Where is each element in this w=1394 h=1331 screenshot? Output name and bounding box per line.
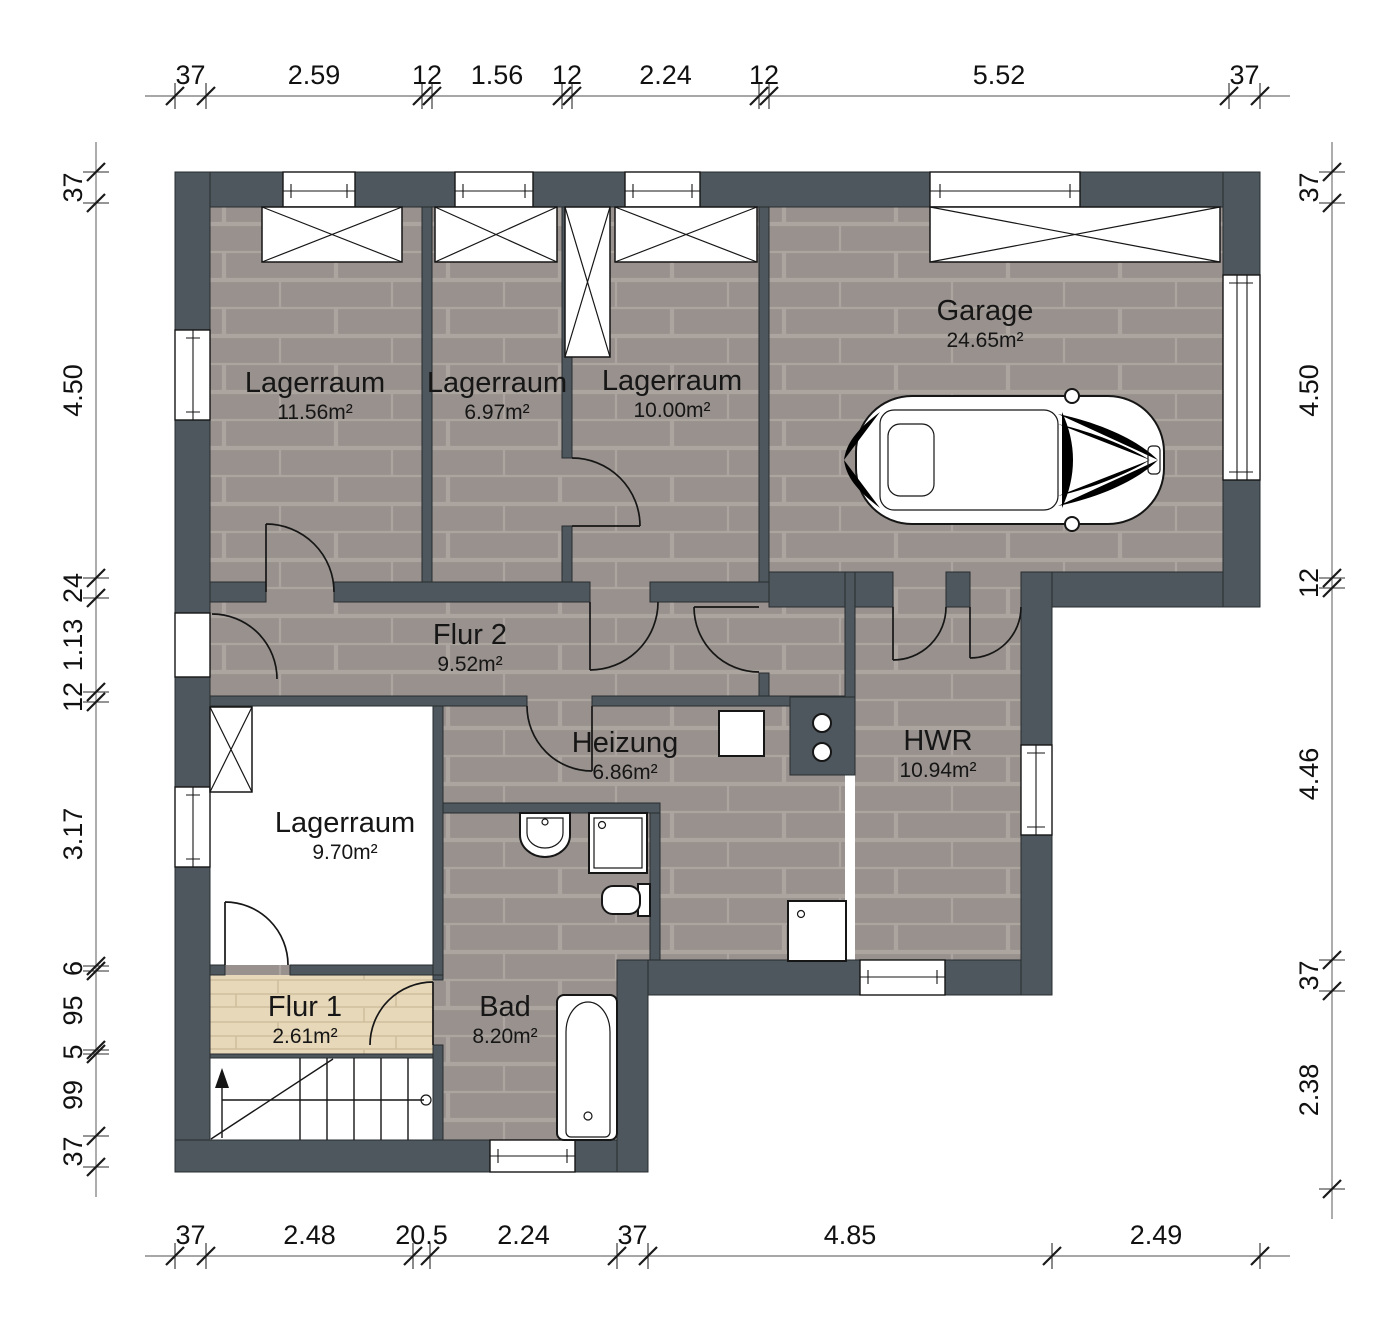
car-icon — [844, 389, 1164, 531]
svg-text:12: 12 — [412, 60, 442, 90]
svg-text:12: 12 — [58, 682, 88, 712]
svg-text:1.56: 1.56 — [471, 60, 524, 90]
svg-text:24.65m²: 24.65m² — [946, 329, 1023, 352]
svg-text:2.61m²: 2.61m² — [272, 1025, 337, 1048]
svg-text:99: 99 — [58, 1080, 88, 1110]
svg-text:Lagerraum: Lagerraum — [275, 807, 415, 839]
floorplan-canvas: Lagerraum11.56m²Lagerraum6.97m²Lagerraum… — [0, 0, 1394, 1331]
svg-text:8.20m²: 8.20m² — [472, 1025, 537, 1048]
svg-text:Heizung: Heizung — [572, 727, 678, 759]
svg-text:4.50: 4.50 — [58, 364, 88, 417]
svg-text:4.50: 4.50 — [1294, 364, 1324, 417]
window-icon — [490, 1140, 575, 1172]
svg-text:2.48: 2.48 — [283, 1220, 336, 1250]
lintel-x-icon — [615, 207, 757, 262]
svg-text:3.17: 3.17 — [58, 808, 88, 861]
dimension-chain-left: 374.50241.13123.1769559937 — [58, 142, 109, 1197]
window-icon — [860, 960, 945, 995]
exterior-door-opening — [175, 613, 210, 677]
svg-text:10.94m²: 10.94m² — [899, 759, 976, 782]
window-icon — [175, 330, 210, 420]
svg-text:4.46: 4.46 — [1294, 748, 1324, 801]
window-icon — [1021, 745, 1052, 835]
dimension-chain-bottom: 372.4820.52.24374.852.49 — [145, 1220, 1290, 1269]
sink-icon — [520, 813, 570, 857]
dimension-chain-top: 372.59121.56122.24125.5237 — [145, 60, 1290, 109]
floor-hwr — [855, 607, 1021, 960]
svg-text:20.5: 20.5 — [395, 1220, 448, 1250]
svg-text:Lagerraum: Lagerraum — [427, 367, 567, 399]
window-icon — [283, 172, 355, 207]
toilet-icon — [602, 884, 650, 916]
svg-text:5.52: 5.52 — [973, 60, 1026, 90]
room-label-lagerraum-4: Lagerraum9.70m² — [275, 807, 415, 864]
svg-text:6: 6 — [58, 961, 88, 976]
svg-text:1.13: 1.13 — [58, 619, 88, 672]
lintel-x-icon — [435, 207, 557, 262]
svg-text:2.24: 2.24 — [639, 60, 692, 90]
svg-text:24: 24 — [58, 573, 88, 603]
washing-machine-icon — [788, 901, 846, 961]
floor-flur-2 — [210, 602, 845, 696]
door-arc — [225, 902, 288, 965]
svg-text:95: 95 — [58, 995, 88, 1025]
svg-text:37: 37 — [617, 1220, 647, 1250]
lintel-x-icon — [210, 707, 252, 792]
svg-text:9.52m²: 9.52m² — [437, 653, 502, 676]
shower-icon — [589, 813, 647, 873]
svg-text:Flur 2: Flur 2 — [433, 619, 507, 651]
svg-text:37: 37 — [1294, 960, 1324, 990]
floor-stairwell — [210, 1058, 433, 1140]
bathtub-icon — [557, 995, 617, 1140]
window-icon — [455, 172, 533, 207]
window-icon — [930, 172, 1080, 207]
svg-text:37: 37 — [58, 1136, 88, 1166]
svg-text:2.38: 2.38 — [1294, 1064, 1324, 1117]
svg-text:Lagerraum: Lagerraum — [602, 365, 742, 397]
svg-text:5: 5 — [58, 1044, 88, 1059]
svg-text:11.56m²: 11.56m² — [277, 401, 352, 424]
svg-text:2.49: 2.49 — [1130, 1220, 1183, 1250]
dimension-chain-right: 374.50124.46372.38 — [1294, 142, 1345, 1219]
window-icon — [625, 172, 700, 207]
svg-text:HWR: HWR — [903, 725, 972, 757]
svg-text:4.85: 4.85 — [824, 1220, 877, 1250]
shaft-x-icon — [565, 207, 610, 357]
svg-text:6.86m²: 6.86m² — [592, 761, 657, 784]
room-label-flur-1: Flur 12.61m² — [268, 991, 342, 1048]
lintel-x-icon — [262, 207, 402, 262]
svg-text:9.70m²: 9.70m² — [312, 841, 377, 864]
svg-text:Bad: Bad — [479, 991, 531, 1023]
svg-text:Garage: Garage — [937, 295, 1034, 327]
svg-text:37: 37 — [58, 172, 88, 202]
svg-text:Flur 1: Flur 1 — [268, 991, 342, 1023]
svg-text:37: 37 — [175, 1220, 205, 1250]
svg-text:10.00m²: 10.00m² — [633, 399, 710, 422]
room-label-bad: Bad8.20m² — [472, 991, 537, 1048]
svg-text:12: 12 — [552, 60, 582, 90]
svg-text:12: 12 — [749, 60, 779, 90]
lintel-x-icon — [930, 207, 1220, 262]
svg-text:37: 37 — [175, 60, 205, 90]
svg-text:12: 12 — [1294, 568, 1324, 598]
svg-text:Lagerraum: Lagerraum — [245, 367, 385, 399]
svg-text:2.24: 2.24 — [497, 1220, 550, 1250]
svg-text:6.97m²: 6.97m² — [464, 401, 529, 424]
room-label-flur-2: Flur 29.52m² — [433, 619, 507, 676]
svg-text:37: 37 — [1229, 60, 1259, 90]
svg-text:37: 37 — [1294, 172, 1324, 202]
heater-icon — [719, 711, 764, 756]
installation-shaft — [790, 697, 855, 775]
svg-text:2.59: 2.59 — [288, 60, 341, 90]
floorplan-drawing: Lagerraum11.56m²Lagerraum6.97m²Lagerraum… — [0, 0, 1394, 1331]
window-icon — [175, 787, 210, 867]
room-floors — [210, 207, 1223, 1143]
room-label-hwr: HWR10.94m² — [899, 725, 976, 782]
room-label-garage: Garage24.65m² — [937, 295, 1034, 352]
garage-door — [1223, 275, 1260, 480]
